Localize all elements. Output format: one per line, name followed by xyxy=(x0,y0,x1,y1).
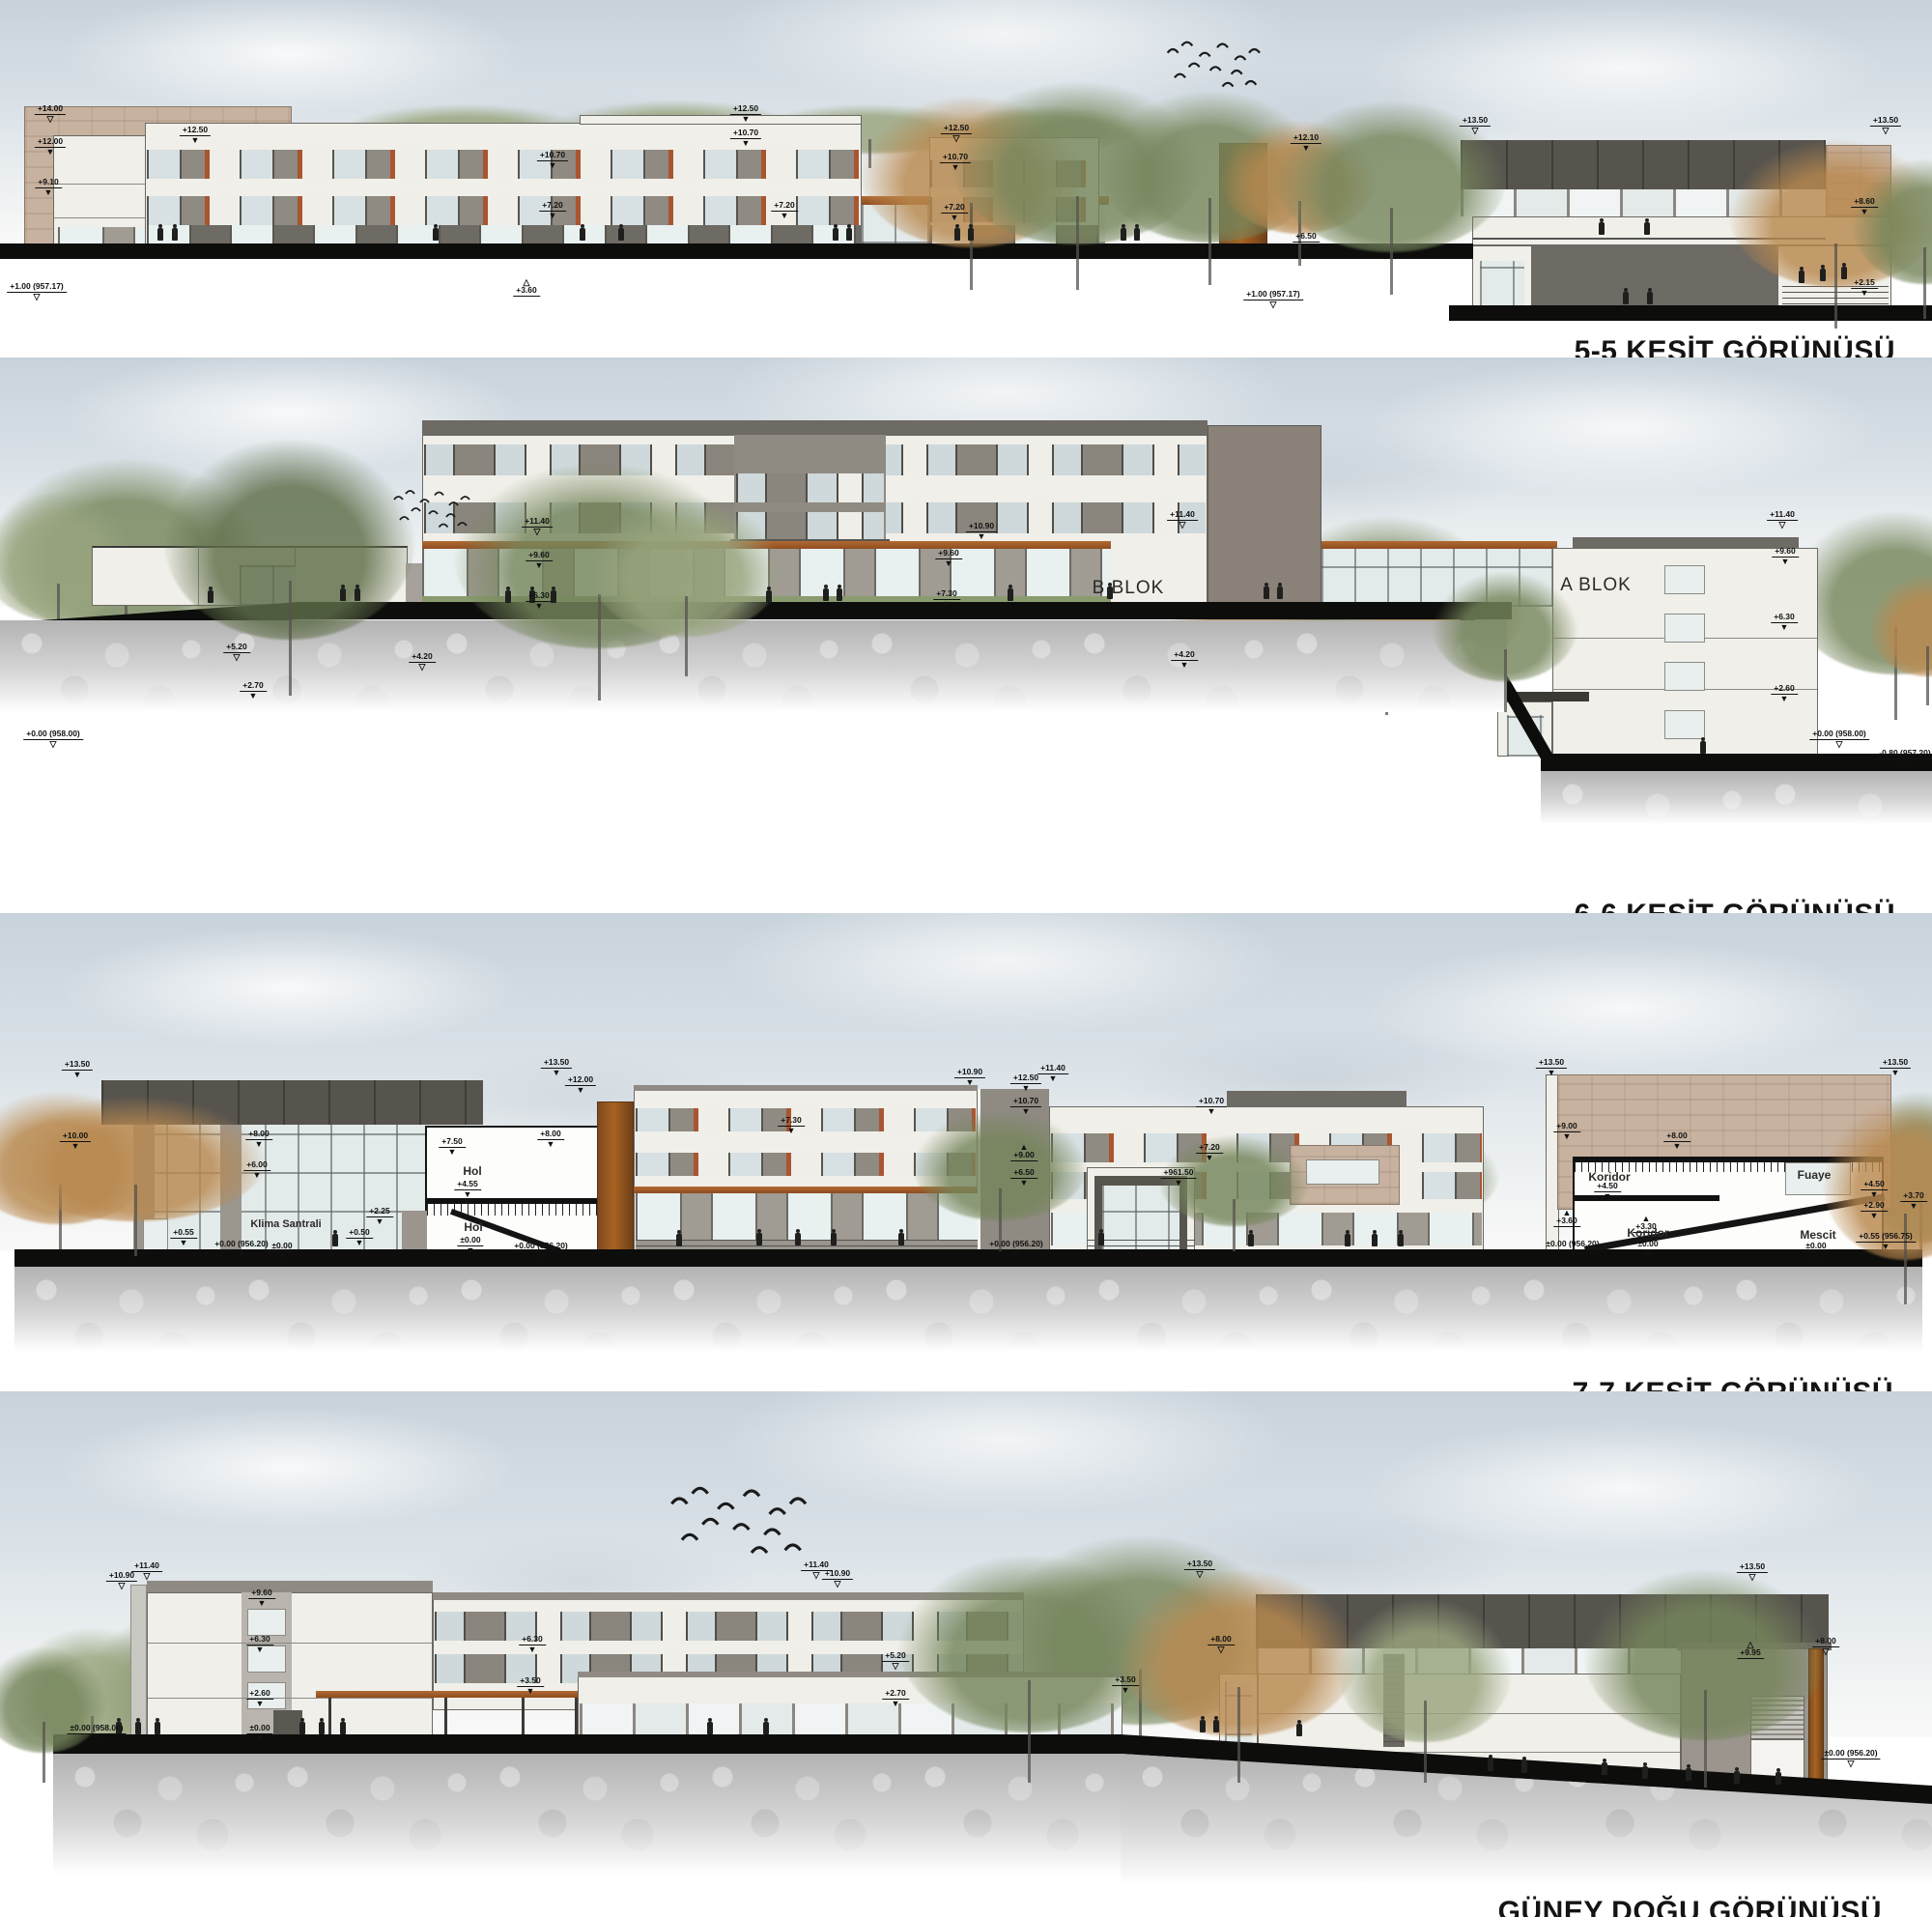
marker-triangle-icon: ▼ xyxy=(180,1239,188,1246)
marker-triangle-icon: ▼ xyxy=(376,1217,384,1225)
marker-triangle-icon: ▽ xyxy=(1472,127,1479,134)
marker-triangle-icon: ▽ xyxy=(119,1582,126,1589)
elevation-marker: +3.50▼ xyxy=(1112,1675,1139,1694)
marker-triangle-icon: ▼ xyxy=(526,1687,535,1695)
marker-triangle-icon: ▼ xyxy=(1207,1107,1216,1115)
elevation-marker: +8.00▽ xyxy=(1207,1635,1235,1653)
room-label: Klima Santrali xyxy=(250,1218,321,1230)
elevation-marker: ▲+3.60 xyxy=(1553,1209,1580,1227)
elevation-marker: +4.50▼ xyxy=(1861,1180,1888,1198)
marker-triangle-icon: ▽ xyxy=(1749,1573,1756,1581)
marker-triangle-icon: ▽ xyxy=(1823,1647,1830,1655)
elevation-marker: +8.00▼ xyxy=(1663,1131,1690,1150)
room-label: Fuaye xyxy=(1798,1168,1832,1182)
marker-triangle-icon: ▼ xyxy=(1604,1192,1612,1200)
elevation-marker: +10.90▼ xyxy=(966,522,997,540)
marker-triangle-icon: ▽ xyxy=(1883,127,1889,134)
elevation-marker: +13.50▼ xyxy=(1536,1058,1567,1076)
architectural-sheet: { "colors":{"corten":"#a85c28","roof_ban… xyxy=(0,0,1932,1917)
marker-triangle-icon: ▼ xyxy=(945,559,953,567)
elevation-marker: +8.00▼ xyxy=(537,1130,564,1148)
marker-triangle-icon: ▼ xyxy=(549,212,557,219)
marker-triangle-icon: ▼ xyxy=(1861,289,1869,297)
marker-triangle-icon: ▼ xyxy=(537,1252,546,1260)
elevation-marker: +10.70▼ xyxy=(537,151,568,169)
marker-triangle-icon: ▼ xyxy=(255,1140,264,1148)
marker-triangle-icon: ▽ xyxy=(1848,1760,1855,1767)
annotations-layer: +10.90▽+11.40▽+9.60▼+6.30▼+2.60▼±0.00▼±0… xyxy=(0,1391,1932,1917)
marker-triangle-icon: ▼ xyxy=(951,214,959,221)
marker-triangle-icon: ▽ xyxy=(234,653,241,661)
elevation-marker: +10.70▼ xyxy=(1010,1097,1041,1115)
elevation-marker: +7.20▼ xyxy=(539,201,566,219)
elevation-marker: +0.50▼ xyxy=(346,1228,373,1246)
elevation-marker: +4.55▼ xyxy=(454,1180,481,1198)
elevation-marker: +10.00▼ xyxy=(60,1131,91,1150)
marker-triangle-icon: ▼ xyxy=(1563,1132,1572,1140)
elevation-marker: +8.00▼ xyxy=(245,1130,272,1148)
elevation-marker: +7.20▼ xyxy=(771,201,798,219)
marker-triangle-icon: ▽ xyxy=(835,1580,841,1588)
elevation-marker: +13.50▽ xyxy=(1737,1562,1768,1581)
marker-triangle-icon: ▼ xyxy=(1861,208,1869,215)
marker-triangle-icon: ▼ xyxy=(966,1078,975,1086)
marker-triangle-icon: ▽ xyxy=(893,1662,899,1670)
elevation-marker: +5.20▽ xyxy=(223,643,250,661)
annotations-layer: +13.50▼+10.00▼+8.00▼+6.00▼+2.25▼+0.50▼+0… xyxy=(0,913,1932,1391)
marker-triangle-icon: ▽ xyxy=(1902,759,1909,767)
elevation-marker: +13.50▽ xyxy=(1870,116,1901,134)
elevation-marker: +13.50▽ xyxy=(1460,116,1491,134)
elevation-marker: +14.00▽ xyxy=(35,104,66,123)
marker-triangle-icon: ▼ xyxy=(1910,1202,1918,1210)
panel-southeast-elevation: +10.90▽+11.40▽+9.60▼+6.30▼+2.60▼±0.00▼±0… xyxy=(0,1391,1932,1917)
marker-triangle-icon: ▼ xyxy=(1020,1179,1029,1187)
marker-triangle-icon: ▼ xyxy=(1780,695,1789,702)
marker-triangle-icon: ▼ xyxy=(547,1140,555,1148)
marker-triangle-icon: ▽ xyxy=(1179,521,1186,529)
room-label: Koridor xyxy=(1588,1170,1630,1184)
marker-triangle-icon: ▽ xyxy=(1779,521,1786,529)
elevation-marker: +12.50▽ xyxy=(941,124,972,142)
elevation-marker: +7.30▼ xyxy=(778,1116,805,1134)
marker-triangle-icon: ▼ xyxy=(1175,1179,1183,1187)
marker-triangle-icon: ▼ xyxy=(278,1252,287,1260)
marker-triangle-icon: ▼ xyxy=(781,212,789,219)
elevation-marker: ±0.00▼ xyxy=(1634,1240,1661,1258)
marker-triangle-icon: ▼ xyxy=(44,188,53,196)
elevation-marker: +9.60▼ xyxy=(526,551,553,569)
elevation-marker: +2.90▼ xyxy=(1861,1201,1888,1219)
marker-value: +3.60 xyxy=(1553,1216,1580,1227)
marker-triangle-icon: ▽ xyxy=(94,1734,100,1742)
marker-value: +3.60 xyxy=(513,286,540,297)
elevation-marker: +2.60▼ xyxy=(1771,684,1798,702)
elevation-marker: +10.90▽ xyxy=(822,1569,853,1588)
marker-triangle-icon: ▼ xyxy=(549,161,557,169)
marker-triangle-icon: ▼ xyxy=(258,1599,267,1607)
view-title: 6-6 KESİT GÖRÜNÜŞÜ xyxy=(1575,899,1895,913)
birds-flock xyxy=(1164,39,1270,102)
elevation-marker: ▲+9.00 xyxy=(1010,1143,1037,1161)
marker-triangle-icon: ▼ xyxy=(892,1700,900,1707)
marker-triangle-icon: ▽ xyxy=(419,663,426,671)
marker-triangle-icon: ▼ xyxy=(787,1127,796,1134)
elevation-marker: +10.70▼ xyxy=(1196,1097,1227,1115)
elevation-marker: +4.50▼ xyxy=(1594,1182,1621,1200)
marker-triangle-icon: ▼ xyxy=(238,1250,246,1258)
marker-triangle-icon: ▽ xyxy=(144,1572,151,1580)
marker-triangle-icon: ▼ xyxy=(71,1142,80,1150)
elevation-marker: +6.50▼ xyxy=(1010,1168,1037,1187)
elevation-marker: +6.50▼ xyxy=(1293,232,1320,250)
elevation-marker: +0.00 (956.20)▼ xyxy=(511,1242,571,1260)
elevation-marker: +3.50▼ xyxy=(517,1676,544,1695)
elevation-marker: +3.70▼ xyxy=(1900,1191,1927,1210)
view-title: 7-7 KESİT GÖRÜNÜŞÜ xyxy=(1573,1377,1893,1391)
elevation-marker: +8.60▼ xyxy=(1851,197,1878,215)
marker-triangle-icon: ▼ xyxy=(535,561,544,569)
marker-triangle-icon: ▼ xyxy=(952,163,960,171)
marker-triangle-icon: ▼ xyxy=(1206,1154,1214,1161)
marker-triangle-icon: ▼ xyxy=(1673,1142,1682,1150)
elevation-marker: -0.80 (957.20)▽ xyxy=(1876,749,1932,767)
elevation-marker: +12.00▼ xyxy=(565,1075,596,1094)
elevation-marker: +2.70▼ xyxy=(240,681,267,700)
marker-triangle-icon: ▼ xyxy=(256,1734,265,1742)
elevation-marker: +9.00▼ xyxy=(1553,1122,1580,1140)
elevation-marker: △+9.95 xyxy=(1737,1641,1764,1659)
marker-triangle-icon: ▼ xyxy=(1781,558,1790,565)
marker-triangle-icon: ▼ xyxy=(1891,1069,1900,1076)
elevation-marker: +2.70▼ xyxy=(882,1689,909,1707)
marker-triangle-icon: ▼ xyxy=(1022,1084,1031,1092)
marker-triangle-icon: ▼ xyxy=(1302,144,1311,152)
elevation-marker: +11.40▽ xyxy=(522,517,553,535)
elevation-marker: +10.70▼ xyxy=(730,129,761,147)
marker-triangle-icon: ▽ xyxy=(50,740,57,748)
elevation-marker: ±0.00▼ xyxy=(457,1236,483,1254)
marker-triangle-icon: ▽ xyxy=(1270,300,1277,308)
room-label: Hol xyxy=(464,1220,482,1234)
elevation-marker: +12.50▼ xyxy=(180,126,211,144)
marker-triangle-icon: ▽ xyxy=(1218,1645,1225,1653)
marker-triangle-icon: ▼ xyxy=(577,1086,585,1094)
elevation-marker: +0.55▼ xyxy=(170,1228,197,1246)
elevation-marker: +0.00 (956.20)▼ xyxy=(212,1240,271,1258)
elevation-marker: ±0.00▼ xyxy=(1803,1242,1829,1260)
elevation-marker: ±0.00 (956.20)▼ xyxy=(1543,1240,1602,1258)
elevation-marker: +10.70▼ xyxy=(940,153,971,171)
elevation-marker: +6.00▼ xyxy=(243,1160,270,1179)
elevation-marker: +8.00▽ xyxy=(1812,1637,1839,1655)
birds-flock xyxy=(667,1483,821,1576)
elevation-marker: +6.30▼ xyxy=(526,591,553,610)
marker-triangle-icon: ▼ xyxy=(1870,1212,1879,1219)
elevation-marker: +2.60▼ xyxy=(246,1689,273,1707)
marker-triangle-icon: ▽ xyxy=(1836,740,1843,748)
marker-triangle-icon: ▼ xyxy=(256,1645,265,1653)
room-label: Koridor xyxy=(1627,1226,1668,1240)
elevation-marker: +12.50▼ xyxy=(730,104,761,123)
elevation-marker: +11.40▽ xyxy=(131,1561,162,1580)
marker-triangle-icon: ▼ xyxy=(249,692,258,700)
elevation-marker: △+3.60 xyxy=(513,278,540,297)
marker-triangle-icon: ▽ xyxy=(813,1571,820,1579)
elevation-marker: +5.20▽ xyxy=(882,1651,909,1670)
marker-triangle-icon: ▽ xyxy=(534,528,541,535)
marker-triangle-icon: ▼ xyxy=(742,115,751,123)
marker-triangle-icon: ▼ xyxy=(1049,1074,1058,1082)
marker-triangle-icon: ▽ xyxy=(953,134,960,142)
elevation-marker: +7.50▼ xyxy=(439,1137,466,1156)
marker-triangle-icon: ▼ xyxy=(742,139,751,147)
marker-triangle-icon: ▼ xyxy=(464,1190,472,1198)
elevation-marker: ±0.00▼ xyxy=(269,1242,295,1260)
marker-triangle-icon: ▼ xyxy=(1569,1250,1577,1258)
elevation-marker: +0.00 (958.00)▽ xyxy=(1809,730,1869,748)
marker-triangle-icon: ▼ xyxy=(191,136,200,144)
elevation-marker: +0.00 (958.00)▽ xyxy=(23,730,83,748)
elevation-marker: +1.00 (957.17)▽ xyxy=(1243,290,1303,308)
marker-triangle-icon: ▼ xyxy=(355,1239,364,1246)
elevation-marker: +13.50▽ xyxy=(1184,1559,1215,1578)
room-label: Hol xyxy=(463,1164,481,1178)
elevation-marker: +9.60▼ xyxy=(935,549,962,567)
elevation-marker: +4.20▼ xyxy=(1171,650,1198,669)
marker-triangle-icon: ▼ xyxy=(1548,1069,1556,1076)
elevation-marker: +10.90▼ xyxy=(954,1068,985,1086)
marker-triangle-icon: ▼ xyxy=(46,148,55,156)
marker-triangle-icon: ▼ xyxy=(253,1171,262,1179)
elevation-marker: +9.60▼ xyxy=(1772,547,1799,565)
elevation-marker: +0.00 (956.20)▼ xyxy=(986,1240,1046,1258)
marker-triangle-icon: ▽ xyxy=(34,293,41,300)
panel-section-7-7: +13.50▼+10.00▼+8.00▼+6.00▼+2.25▼+0.50▼+0… xyxy=(0,913,1932,1391)
marker-triangle-icon: ▽ xyxy=(47,115,54,123)
marker-triangle-icon: ▼ xyxy=(467,1246,475,1254)
marker-value: +9.00 xyxy=(1010,1151,1037,1161)
annotations-layer: +14.00▽+12.50▼+12.00▼+9.10▼+10.70▼+7.20▼… xyxy=(0,0,1932,358)
panel-section-5-5: +14.00▽+12.50▼+12.00▼+9.10▼+10.70▼+7.20▼… xyxy=(0,0,1932,358)
elevation-marker: +11.40▼ xyxy=(1037,1064,1068,1082)
marker-triangle-icon: ▼ xyxy=(1870,1190,1879,1198)
elevation-marker: +6.30▼ xyxy=(519,1635,546,1653)
elevation-marker: +6.30▼ xyxy=(1771,613,1798,631)
view-title: GÜNEY DOĞU GÖRÜNÜŞÜ xyxy=(1498,1896,1882,1917)
elevation-marker: +12.10▼ xyxy=(1291,133,1321,152)
panel-section-6-6: +5.20▽+4.20▽+2.70▼+0.00 (958.00)▽+11.40▽… xyxy=(0,358,1932,913)
view-title: 5-5 KESİT GÖRÜNÜŞÜ xyxy=(1575,335,1895,358)
marker-triangle-icon: ▼ xyxy=(1644,1250,1653,1258)
marker-triangle-icon: ▼ xyxy=(1780,623,1789,631)
block-label: B BLOK xyxy=(1093,578,1165,599)
elevation-marker: +1.00 (957.17)▽ xyxy=(7,282,67,300)
elevation-marker: +0.55 (956.75)▼ xyxy=(1856,1232,1916,1250)
elevation-marker: +961.50▼ xyxy=(1161,1168,1197,1187)
elevation-marker: +2.15▼ xyxy=(1851,278,1878,297)
marker-triangle-icon: ▼ xyxy=(1022,1107,1031,1115)
birds-flock xyxy=(391,488,478,540)
marker-triangle-icon: ▼ xyxy=(1302,243,1311,250)
marker-triangle-icon: ▼ xyxy=(256,1700,265,1707)
marker-triangle-icon: ▼ xyxy=(448,1148,457,1156)
elevation-marker: +9.10▼ xyxy=(35,178,62,196)
marker-triangle-icon: ▼ xyxy=(528,1645,537,1653)
elevation-marker: +6.30▼ xyxy=(246,1635,273,1653)
elevation-marker: +2.25▼ xyxy=(366,1207,393,1225)
marker-triangle-icon: ▼ xyxy=(978,532,986,540)
block-label: A BLOK xyxy=(1560,575,1632,596)
elevation-marker: +7.30▼ xyxy=(933,589,960,608)
marker-triangle-icon: ▼ xyxy=(535,602,544,610)
marker-triangle-icon: ▼ xyxy=(943,600,952,608)
elevation-marker: +11.40▽ xyxy=(1167,510,1198,529)
elevation-marker: +7.20▼ xyxy=(941,203,968,221)
elevation-marker: +11.40▽ xyxy=(1767,510,1798,529)
marker-triangle-icon: ▼ xyxy=(1122,1686,1130,1694)
marker-triangle-icon: ▽ xyxy=(1197,1570,1204,1578)
marker-triangle-icon: ▼ xyxy=(73,1071,82,1078)
elevation-marker: +4.20▽ xyxy=(409,652,436,671)
elevation-marker: ±0.00▼ xyxy=(246,1724,272,1742)
elevation-marker: +13.50▼ xyxy=(1880,1058,1911,1076)
annotations-layer: +5.20▽+4.20▽+2.70▼+0.00 (958.00)▽+11.40▽… xyxy=(0,358,1932,913)
elevation-marker: ±0.00 (958.00)▽ xyxy=(67,1724,126,1742)
elevation-marker: ±0.00 (956.20)▽ xyxy=(1821,1749,1880,1767)
marker-value: +9.95 xyxy=(1737,1648,1764,1659)
elevation-marker: +9.60▼ xyxy=(248,1588,275,1607)
marker-triangle-icon: ▼ xyxy=(1180,661,1189,669)
marker-triangle-icon: ▼ xyxy=(1812,1252,1821,1260)
elevation-marker: +13.50▼ xyxy=(62,1060,93,1078)
marker-triangle-icon: ▼ xyxy=(1882,1243,1890,1250)
marker-triangle-icon: ▼ xyxy=(1012,1250,1021,1258)
marker-triangle-icon: ▼ xyxy=(553,1069,561,1076)
elevation-marker: +7.20▼ xyxy=(1196,1143,1223,1161)
room-label: Mescit xyxy=(1800,1228,1835,1242)
elevation-marker: +12.00▼ xyxy=(35,137,66,156)
